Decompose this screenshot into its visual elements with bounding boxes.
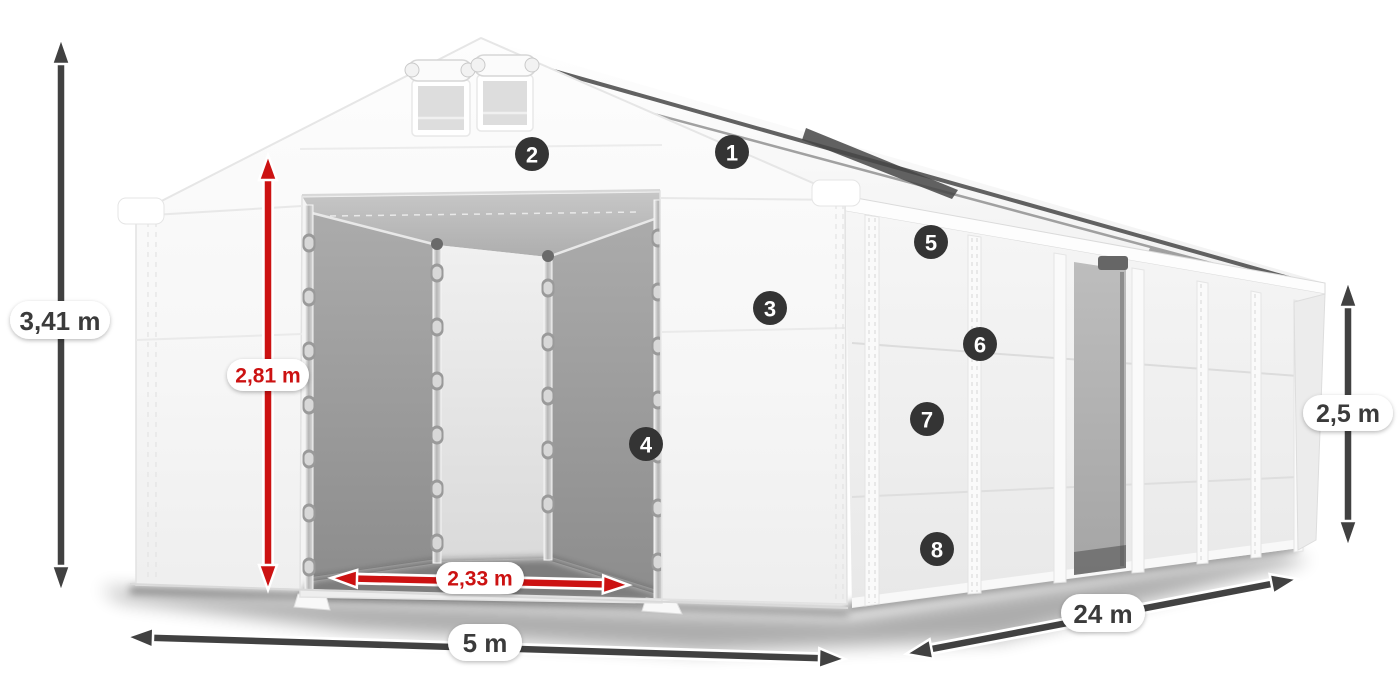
eave-cap-right bbox=[812, 180, 860, 206]
right-door-panel bbox=[548, 217, 660, 593]
door-corner-bracket bbox=[1098, 256, 1128, 270]
callout-number: 1 bbox=[726, 141, 738, 166]
side-door-opening bbox=[1074, 256, 1128, 575]
side-height-value: 2,5 m bbox=[1316, 400, 1380, 428]
dim-length-label: 24 m bbox=[1061, 594, 1145, 632]
dim-door-width-label: 2,33 m bbox=[436, 562, 524, 594]
callout-badge-1: 1 bbox=[715, 135, 749, 169]
callout-number: 5 bbox=[925, 231, 937, 256]
width-value: 5 m bbox=[463, 628, 508, 658]
callout-number: 4 bbox=[640, 433, 653, 458]
callout-badge-5: 5 bbox=[914, 225, 948, 259]
door-pass-through bbox=[437, 245, 548, 561]
gable-window-left bbox=[412, 80, 470, 136]
callout-badge-7: 7 bbox=[910, 402, 944, 436]
callout-number: 7 bbox=[921, 408, 933, 433]
product-diagram-stage: 1 2 3 4 5 6 7 8 bbox=[0, 0, 1400, 700]
front-opening-interior bbox=[294, 191, 682, 614]
callout-number: 6 bbox=[974, 333, 986, 358]
total-height-value: 3,41 m bbox=[20, 306, 101, 336]
length-value: 24 m bbox=[1073, 599, 1132, 629]
dim-door-height-label: 2,81 m bbox=[227, 359, 309, 391]
left-door-panel bbox=[312, 213, 437, 579]
dim-width-label: 5 m bbox=[448, 624, 522, 661]
callout-badge-8: 8 bbox=[920, 532, 954, 566]
dim-side-height-label: 2,5 m bbox=[1303, 395, 1393, 431]
door-width-value: 2,33 m bbox=[447, 568, 512, 591]
tent-dimension-diagram: 1 2 3 4 5 6 7 8 bbox=[0, 0, 1400, 700]
eave-cap-left bbox=[118, 198, 164, 224]
callout-number: 8 bbox=[931, 538, 943, 563]
window-roll-right bbox=[471, 55, 539, 76]
callout-number: 2 bbox=[526, 143, 538, 168]
gable-window-right bbox=[477, 75, 533, 131]
callout-badge-2: 2 bbox=[515, 137, 549, 171]
callout-badge-3: 3 bbox=[753, 291, 787, 325]
callout-number: 3 bbox=[764, 297, 776, 322]
dim-total-height-label: 3,41 m bbox=[10, 301, 110, 339]
callout-badge-4: 4 bbox=[629, 427, 663, 461]
callout-badge-6: 6 bbox=[963, 327, 997, 361]
door-height-value: 2,81 m bbox=[235, 365, 300, 388]
window-roll-left bbox=[405, 60, 475, 81]
